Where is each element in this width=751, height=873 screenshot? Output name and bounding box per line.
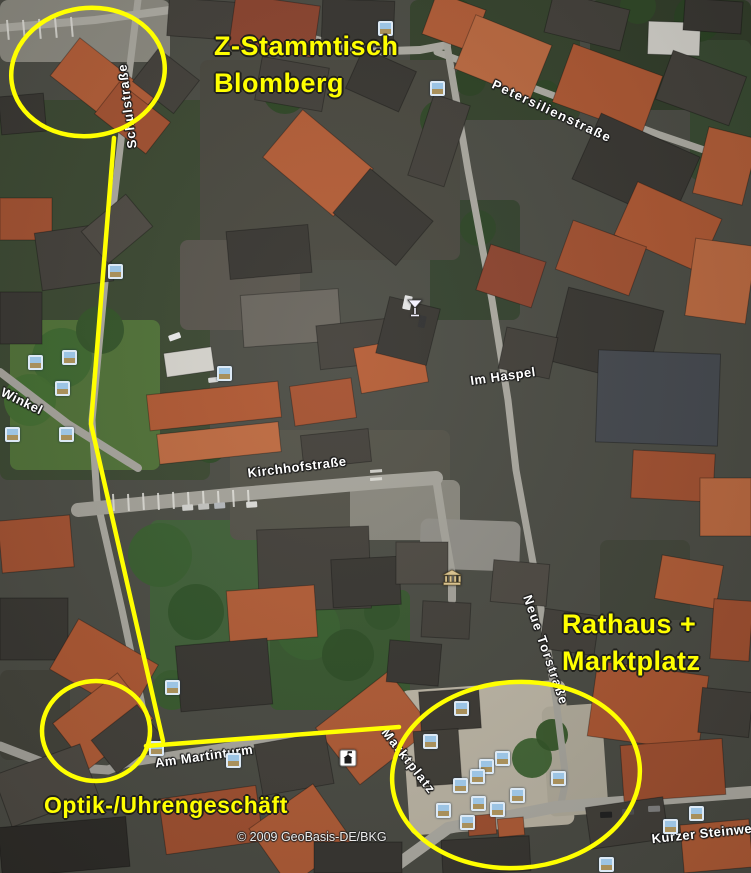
annotation-optik-uhrengeschaeft: Optik-/Uhrengeschäft [44,787,288,824]
annotation-stammtisch-line2: Blomberg [214,65,399,102]
route-line-horizontal [146,727,399,746]
annotation-rathaus-marktplatz: Rathaus + Marktplatz [562,606,701,680]
annotation-rathaus-line1: Rathaus + [562,606,701,643]
stammtisch-circle [3,0,173,146]
optik-circle [42,681,150,781]
marktplatz-ellipse [386,674,646,873]
annotation-drawing-layer [0,0,751,873]
annotation-stammtisch-line1: Z-Stammtisch [214,28,399,65]
annotation-stammtisch: Z-Stammtisch Blomberg [214,28,399,102]
copyright-attribution: © 2009 GeoBasis-DE/BKG [237,830,387,844]
annotation-rathaus-line2: Marktplatz [562,643,701,680]
satellite-map-view[interactable]: SchulstraßePetersilienstraßeWinkelIm Has… [0,0,751,873]
route-line-vertical [91,138,163,741]
